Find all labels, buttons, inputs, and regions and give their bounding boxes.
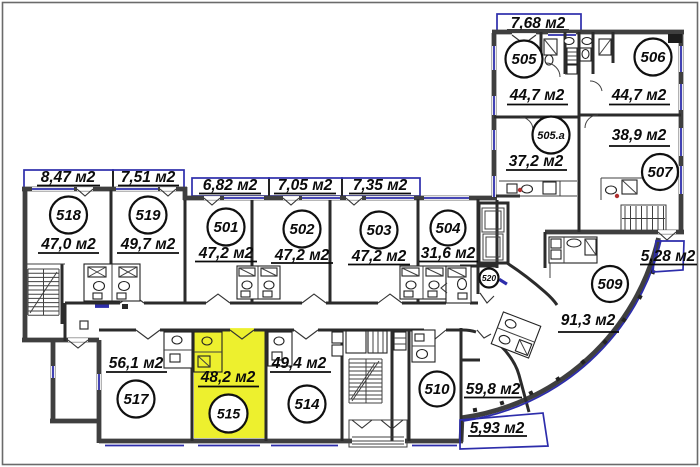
svg-text:47,2 м2: 47,2 м2 (274, 247, 330, 264)
svg-text:47,0 м2: 47,0 м2 (40, 236, 96, 253)
svg-text:7,05 м2: 7,05 м2 (278, 177, 333, 194)
svg-text:515: 515 (217, 406, 241, 422)
svg-text:502: 502 (289, 221, 315, 238)
svg-text:37,2 м2: 37,2 м2 (509, 153, 564, 170)
svg-text:517: 517 (123, 391, 149, 408)
svg-text:519: 519 (135, 207, 161, 224)
svg-text:6,82 м2: 6,82 м2 (203, 177, 258, 194)
svg-text:49,4 м2: 49,4 м2 (271, 355, 327, 372)
svg-text:38,9 м2: 38,9 м2 (612, 127, 667, 144)
svg-text:5,28 м2: 5,28 м2 (641, 248, 696, 265)
svg-text:31,6 м2: 31,6 м2 (421, 245, 476, 262)
svg-text:49,7 м2: 49,7 м2 (120, 236, 176, 253)
svg-text:509: 509 (597, 276, 623, 293)
svg-text:7,51 м2: 7,51 м2 (121, 169, 176, 186)
svg-text:44,7 м2: 44,7 м2 (611, 87, 667, 104)
svg-text:503: 503 (366, 222, 392, 239)
svg-text:59,8 м2: 59,8 м2 (466, 381, 521, 398)
svg-text:501: 501 (213, 219, 238, 236)
svg-text:504: 504 (435, 220, 461, 237)
svg-text:7,35 м2: 7,35 м2 (353, 177, 408, 194)
svg-text:505.а: 505.а (537, 130, 565, 142)
svg-text:44,7 м2: 44,7 м2 (509, 87, 565, 104)
svg-text:514: 514 (294, 396, 320, 413)
svg-text:506: 506 (640, 49, 666, 66)
svg-text:91,3 м2: 91,3 м2 (561, 312, 616, 329)
svg-text:56,1 м2: 56,1 м2 (109, 355, 164, 372)
svg-text:507: 507 (647, 164, 673, 181)
svg-text:47,2 м2: 47,2 м2 (351, 248, 407, 265)
svg-text:48,2 м2: 48,2 м2 (200, 369, 256, 386)
svg-text:505: 505 (511, 51, 537, 68)
svg-text:47,2 м2: 47,2 м2 (198, 245, 254, 262)
svg-text:8,47 м2: 8,47 м2 (41, 169, 96, 186)
svg-text:520: 520 (482, 273, 496, 283)
svg-text:5,93 м2: 5,93 м2 (470, 420, 525, 437)
svg-text:518: 518 (56, 207, 82, 224)
svg-text:510: 510 (424, 381, 450, 398)
